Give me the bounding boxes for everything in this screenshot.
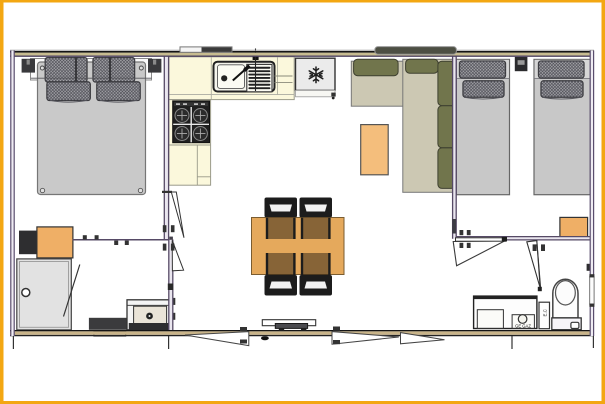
svg-text:GE GAZ: GE GAZ <box>515 324 531 329</box>
svg-text:E.C: E.C <box>543 309 548 316</box>
